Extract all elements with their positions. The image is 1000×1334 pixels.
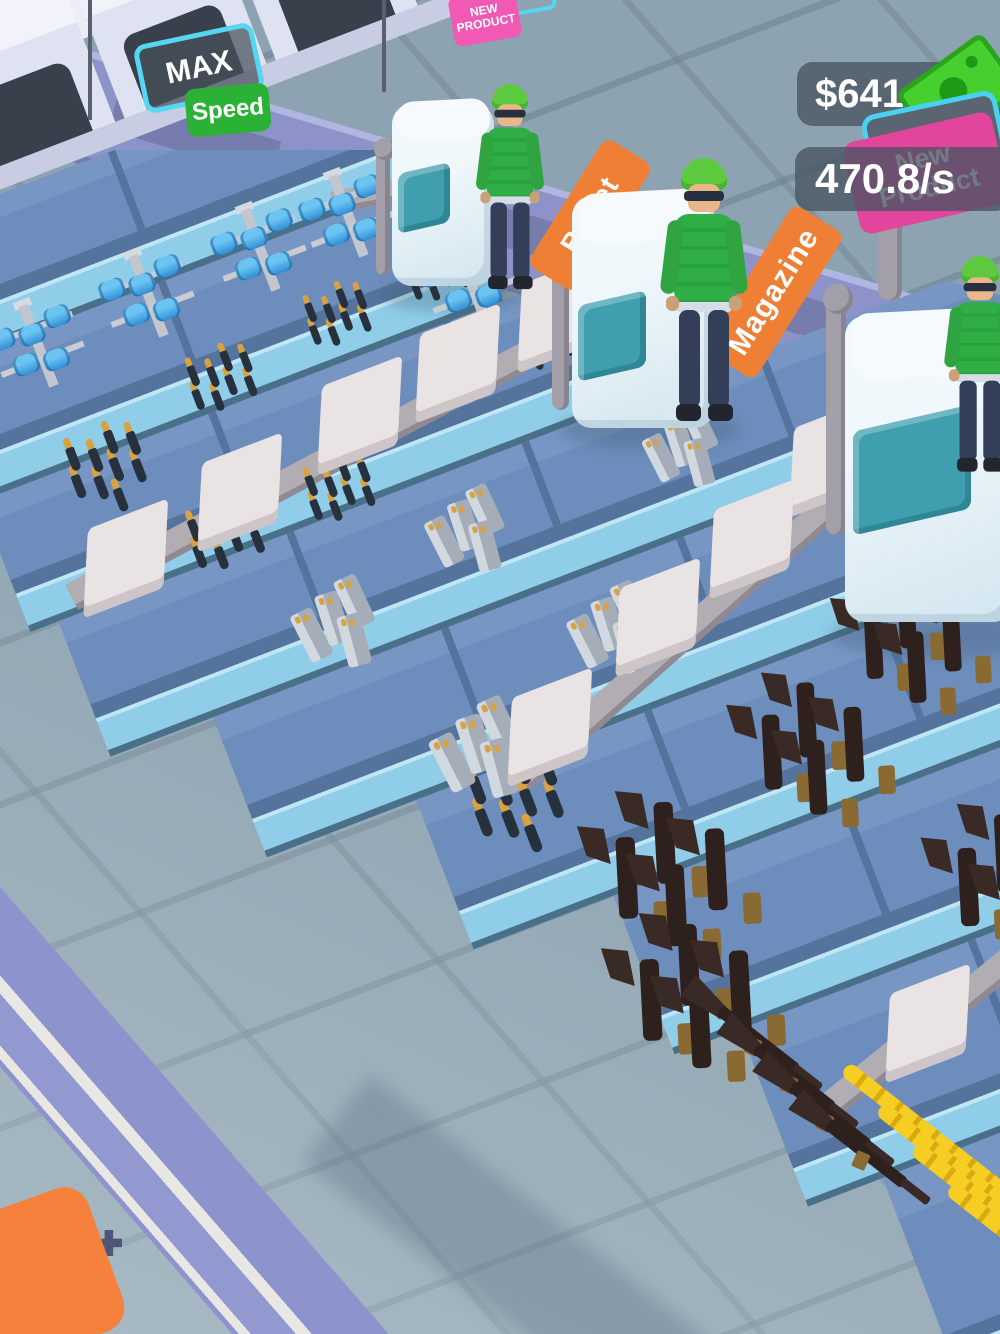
worker-boot [708,404,733,421]
worker-leg [708,310,729,408]
worker-boot [983,458,1000,472]
new-product-badge-line2: PRODUCT [456,12,517,35]
machine-screen [398,162,450,234]
worker-leg [513,203,529,279]
worker-leg [960,381,977,461]
machine-screen [578,290,646,382]
assembler-machine-1[interactable] [392,104,494,286]
rifle-body [843,706,864,782]
worker-boot [513,276,533,289]
worker-glasses-icon [964,283,997,291]
worker-boot [488,276,508,289]
worker-boot [957,458,978,472]
income-rate-value: 470.8/s [815,155,955,203]
game-screen: Bullet Magazine $641.9K $300K New Produc… [0,0,1000,1334]
worker [480,84,539,296]
worker-boot [676,404,701,421]
worker-leg [679,310,700,408]
worker-hand [729,296,742,311]
income-rate-counter: 470.8/s [795,147,1000,211]
rifle-body [705,828,728,910]
worker-hand [666,296,679,311]
worker-hand [480,192,490,204]
antenna [88,0,92,120]
rifle-magazine [878,765,896,794]
max-label: MAX [163,44,235,91]
machine-roof [395,98,491,143]
worker [666,158,742,430]
speed-upgrade-button[interactable]: Speed [184,82,272,137]
rifle-magazine [975,656,992,684]
worker-hand [949,369,960,381]
speed-label: Speed [191,93,265,127]
worker [949,256,1000,479]
worker-glasses-icon [684,191,724,201]
worker-leg [491,203,507,279]
rifle-body [806,739,827,815]
worker-leg [983,381,1000,461]
worker-glasses-icon [494,110,525,118]
rifle-body [906,631,927,703]
antenna [382,0,386,92]
worker-hand [530,192,540,204]
